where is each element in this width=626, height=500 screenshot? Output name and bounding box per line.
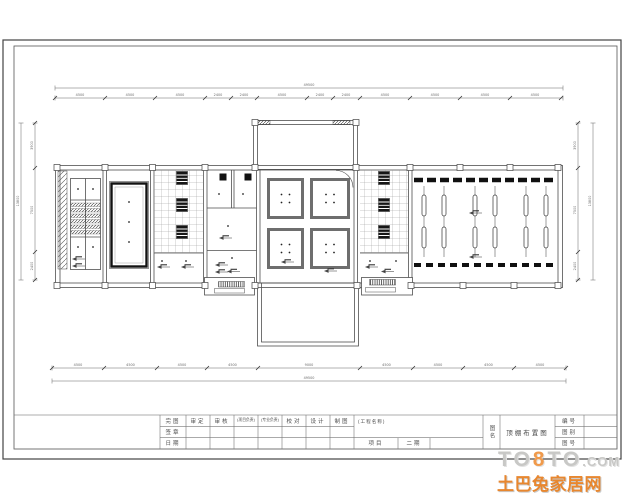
svg-text:3900: 3900 [30, 141, 34, 150]
header-shending: 审定 [186, 415, 210, 426]
svg-text:2400: 2400 [214, 93, 223, 97]
watermark-eight: 8 [533, 448, 548, 471]
svg-text:4500: 4500 [531, 93, 540, 97]
svg-text:4500: 4500 [481, 93, 490, 97]
top-tower [254, 121, 358, 170]
header-shenhe: 审核 [210, 415, 234, 426]
svg-text:13800: 13800 [16, 196, 20, 207]
svg-text:4500: 4500 [536, 363, 545, 367]
room-grid-left [154, 170, 204, 268]
watermark-to2: TO [547, 448, 582, 471]
item-label: 项目 [354, 438, 398, 449]
svg-text:49500: 49500 [304, 83, 315, 87]
dimension-values: 4500 4500 4500 2400 2400 4500 2400 2400 … [16, 83, 592, 380]
svg-text:49500: 49500 [304, 376, 315, 380]
bottom-dimension-line [50, 366, 568, 384]
svg-text:13800: 13800 [588, 196, 592, 207]
left-dimension-line [19, 121, 38, 282]
drawing-name-label: 图名 [483, 415, 500, 449]
coffer-dots [281, 194, 335, 254]
svg-text:4500: 4500 [74, 363, 83, 367]
svg-text:3900: 3900 [573, 141, 577, 150]
svg-text:4500: 4500 [381, 93, 390, 97]
watermark-to1: TO [498, 448, 533, 471]
header-discipline-lead: (专业负责) [258, 415, 282, 426]
watermark-brand: 土巴兔家居网 [497, 470, 602, 495]
svg-text:2400: 2400 [30, 262, 34, 271]
watermark-site: TO8TO.COM [498, 448, 620, 472]
room-grid-right [360, 170, 408, 273]
right-dimension-line [576, 121, 596, 282]
sign-row-label: 签章 [160, 426, 186, 437]
entry-steps [370, 280, 396, 286]
room-light-hall [414, 180, 556, 265]
svg-text:4500: 4500 [434, 363, 443, 367]
svg-text:2400: 2400 [316, 93, 325, 97]
svg-text:4500: 4500 [484, 363, 493, 367]
svg-text:4500: 4500 [76, 93, 85, 97]
svg-text:4500: 4500 [126, 363, 135, 367]
room-dark-frame [110, 182, 149, 269]
header-zhitu: 制图 [330, 415, 354, 426]
svg-text:2400: 2400 [342, 93, 351, 97]
svg-text:4500: 4500 [431, 93, 440, 97]
light-fixtures [422, 186, 548, 257]
svg-text:9000: 9000 [305, 363, 314, 367]
category-label: 图别 [555, 426, 584, 437]
entry-steps [219, 282, 245, 288]
cad-drawing-page: 4500 4500 4500 2400 2400 4500 2400 2400 … [0, 0, 626, 500]
svg-text:4500: 4500 [176, 93, 185, 97]
room-central-hall [269, 171, 354, 273]
svg-text:4500: 4500 [382, 363, 391, 367]
header-jiaodui: 校对 [282, 415, 306, 426]
header-project-lead: (项目负责) [234, 415, 258, 426]
svg-text:4500: 4500 [126, 93, 135, 97]
number-label: 编号 [555, 415, 584, 426]
floor-plan [54, 120, 563, 347]
svg-text:2400: 2400 [240, 93, 249, 97]
lintel-hatch [333, 121, 350, 125]
svg-text:7500: 7500 [573, 206, 577, 215]
svg-text:4500: 4500 [178, 363, 187, 367]
svg-text:4500: 4500 [278, 93, 287, 97]
project-name-label: (工程名称) [358, 417, 438, 427]
watermark-domain: .COM [582, 454, 620, 469]
header-sheji: 设计 [306, 415, 330, 426]
sign-row-label: 完图 [160, 415, 186, 426]
drawing-name: 顶棚布置图 [500, 415, 555, 449]
svg-text:4500: 4500 [228, 363, 237, 367]
svg-text:7500: 7500 [30, 206, 34, 215]
room-left-panel [58, 171, 101, 270]
svg-text:2400: 2400 [573, 262, 577, 271]
sign-row-label: 日期 [160, 438, 186, 449]
item-value: 二期 [398, 438, 430, 449]
